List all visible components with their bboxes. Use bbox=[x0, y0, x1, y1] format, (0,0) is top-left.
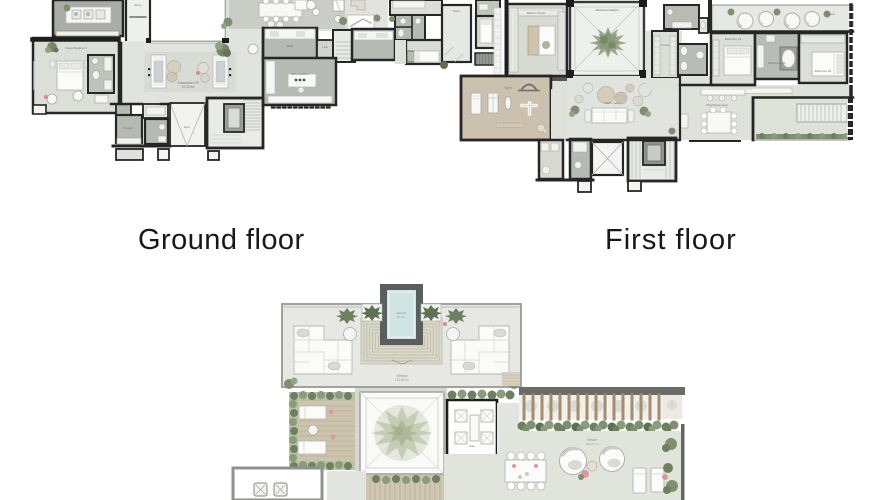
svg-text:Antonio's Garden: Antonio's Garden bbox=[595, 8, 618, 12]
svg-text:140,47 m²: 140,47 m² bbox=[585, 442, 599, 446]
svg-text:Bedroom 03: Bedroom 03 bbox=[815, 69, 832, 73]
svg-text:BBQ: BBQ bbox=[287, 44, 294, 48]
svg-text:Play/Study area: Play/Study area bbox=[706, 103, 728, 107]
svg-text:47,23 m²: 47,23 m² bbox=[182, 85, 195, 89]
svg-text:Trash: Trash bbox=[452, 9, 460, 13]
svg-text:Master Closet: Master Closet bbox=[527, 11, 546, 15]
svg-text:Piano room: Piano room bbox=[604, 101, 620, 105]
svg-text:Gym: Gym bbox=[505, 86, 512, 90]
svg-text:Link: Link bbox=[322, 45, 328, 49]
svg-text:Closet: Closet bbox=[661, 43, 670, 47]
svg-text:Bedroom 02: Bedroom 02 bbox=[725, 37, 742, 41]
svg-text:Powder: Powder bbox=[123, 126, 133, 130]
svg-text:9,0 m²: 9,0 m² bbox=[397, 315, 405, 319]
svg-text:114,86 m²: 114,86 m² bbox=[395, 378, 409, 382]
svg-text:Terrace: Terrace bbox=[825, 12, 835, 16]
svg-text:Guest Bedroom: Guest Bedroom bbox=[65, 46, 87, 50]
svg-text:Bathroom 02: Bathroom 02 bbox=[768, 61, 786, 65]
svg-text:Dirty Kitchen: Dirty Kitchen bbox=[291, 72, 308, 76]
svg-text:Entry: Entry bbox=[134, 3, 142, 7]
svg-text:Gym: Gym bbox=[184, 125, 191, 129]
svg-text:Map: Map bbox=[469, 444, 475, 448]
